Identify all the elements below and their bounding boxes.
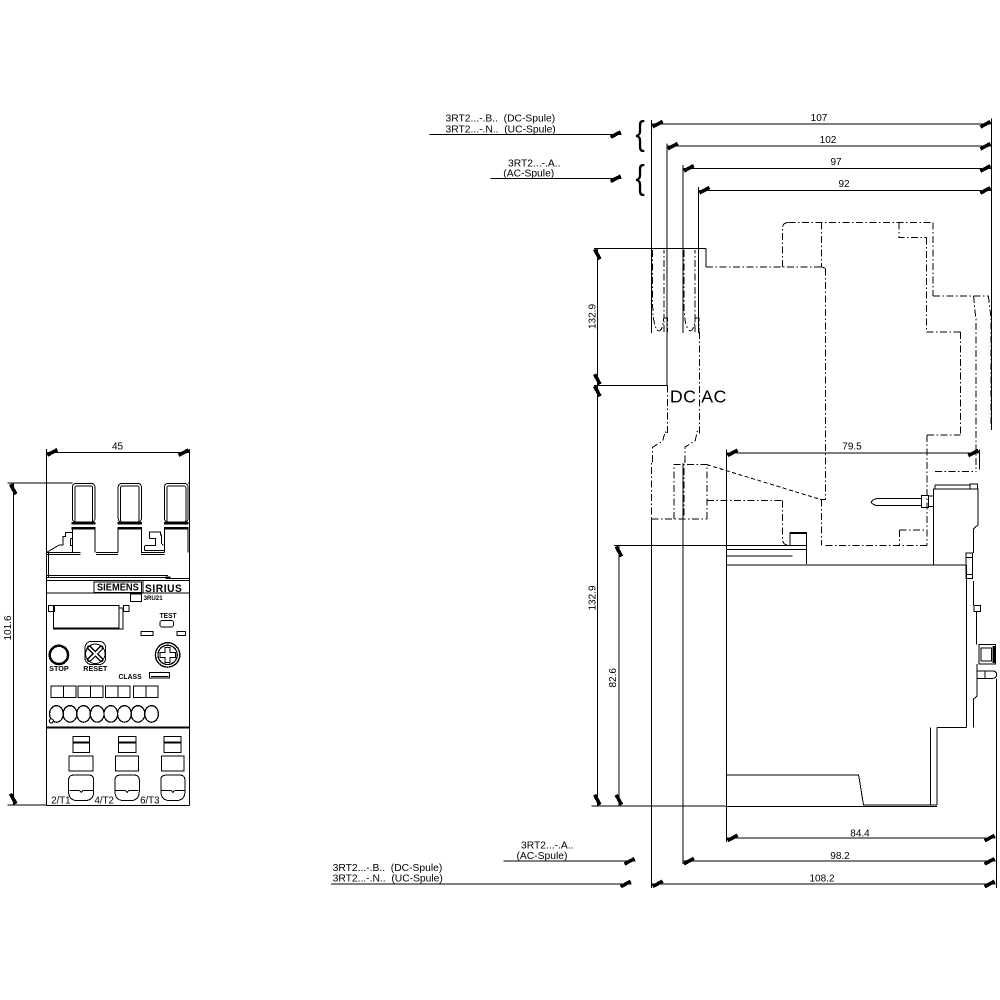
svg-text:108.2: 108.2 bbox=[809, 874, 834, 885]
svg-text:45: 45 bbox=[112, 441, 124, 452]
svg-text:132.9: 132.9 bbox=[587, 304, 598, 329]
svg-text:STOP: STOP bbox=[49, 664, 69, 673]
svg-text:{: { bbox=[636, 114, 645, 152]
svg-text:SIEMENS: SIEMENS bbox=[97, 582, 139, 593]
svg-text:SIRIUS: SIRIUS bbox=[145, 582, 182, 594]
svg-text:132.9: 132.9 bbox=[587, 585, 598, 610]
svg-text:107: 107 bbox=[811, 113, 828, 124]
svg-text:98.2: 98.2 bbox=[830, 851, 850, 862]
svg-text:6/T3: 6/T3 bbox=[140, 796, 159, 807]
svg-text:3RT2...-.B.. (DC-Spule): 3RT2...-.B.. (DC-Spule) bbox=[333, 863, 443, 874]
svg-text:TEST: TEST bbox=[160, 613, 178, 620]
svg-text:82.6: 82.6 bbox=[608, 668, 619, 688]
svg-text:(AC-Spule): (AC-Spule) bbox=[517, 851, 568, 862]
svg-text:3RT2...-.B.. (DC-Spule): 3RT2...-.B.. (DC-Spule) bbox=[446, 114, 556, 125]
svg-text:84.4: 84.4 bbox=[850, 828, 870, 839]
svg-text:3RT2...-.N.. (UC-Spule): 3RT2...-.N.. (UC-Spule) bbox=[333, 874, 443, 885]
svg-text:CLASS: CLASS bbox=[119, 674, 142, 681]
svg-text:102: 102 bbox=[820, 135, 837, 146]
svg-text:92: 92 bbox=[838, 179, 850, 190]
svg-text:3RT2...-.A..: 3RT2...-.A.. bbox=[521, 841, 573, 852]
svg-text:79.5: 79.5 bbox=[842, 442, 862, 453]
svg-text:97: 97 bbox=[830, 157, 842, 168]
svg-text:101.6: 101.6 bbox=[3, 615, 14, 640]
svg-text:(AC-Spule): (AC-Spule) bbox=[503, 169, 554, 180]
svg-text:4/T2: 4/T2 bbox=[95, 796, 114, 807]
svg-text:2/T1: 2/T1 bbox=[51, 796, 70, 807]
svg-text:3RT2...-.N.. (UC-Spule): 3RT2...-.N.. (UC-Spule) bbox=[446, 124, 556, 135]
svg-text:AC: AC bbox=[701, 386, 727, 406]
svg-text:{: { bbox=[636, 158, 645, 196]
svg-text:3RU21: 3RU21 bbox=[144, 595, 163, 602]
svg-text:RESET: RESET bbox=[83, 664, 108, 673]
svg-text:DC: DC bbox=[670, 386, 696, 406]
